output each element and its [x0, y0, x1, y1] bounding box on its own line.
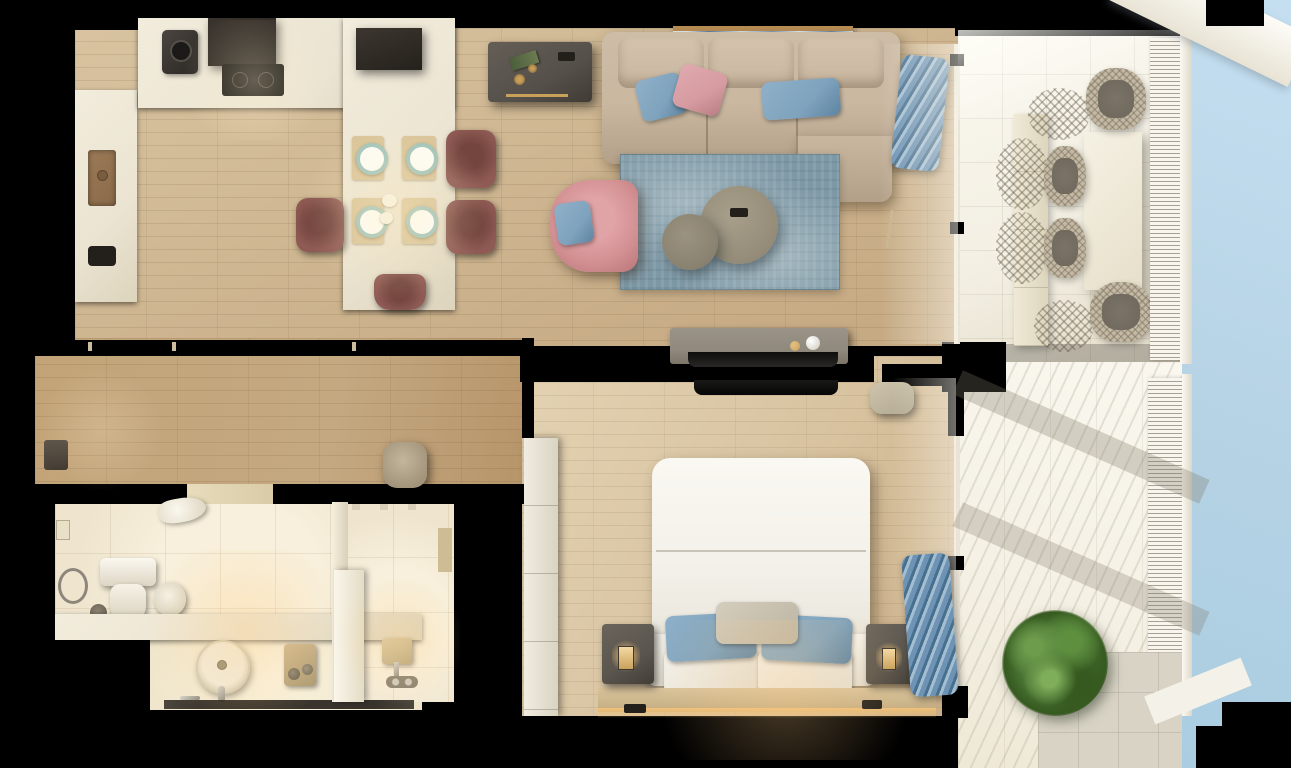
duvet-fold: [656, 550, 866, 552]
headboard-ledge: [598, 688, 936, 712]
floorplan-render: [0, 0, 1291, 768]
desk: [488, 42, 592, 102]
chair-shadow: [996, 138, 1048, 210]
curtain-bedroom: [901, 552, 959, 697]
outdoor-table: [1084, 132, 1142, 290]
tv-remotes: [730, 208, 748, 217]
wardrobe: [524, 438, 558, 716]
plant-shrub: [1002, 610, 1108, 716]
outdoor-chair-seat: [1052, 230, 1078, 266]
shower-head: [382, 638, 412, 664]
caddy-jar: [302, 664, 313, 675]
door-jamb-marks: [88, 342, 92, 351]
toilet-paper-roll: [154, 582, 186, 616]
decor-sphere-white: [806, 336, 820, 350]
window-mullion: [948, 556, 964, 570]
desk-cup: [528, 64, 537, 73]
shower-valve: [386, 676, 418, 688]
railing-outer-ledge: [1180, 34, 1192, 364]
chair-shadow: [1028, 88, 1090, 140]
remote-on-ledge: [624, 704, 646, 713]
wall-top-left: [0, 0, 140, 30]
caddy-jar: [288, 668, 300, 680]
basin-drain: [217, 660, 227, 670]
dining-chair: [446, 130, 496, 188]
burner: [258, 72, 274, 88]
dinner-plate: [406, 143, 438, 175]
door-jamb-marks: [172, 342, 176, 351]
range-hood: [208, 18, 276, 66]
desk-cup: [514, 74, 525, 85]
sky: [1180, 0, 1291, 768]
remote-on-ledge: [862, 700, 882, 709]
shower-glass-handle: [180, 696, 200, 700]
bed-pillow-lumbar: [716, 602, 798, 644]
railing-outer-ledge: [1182, 374, 1192, 716]
decor-sphere-gold: [790, 341, 800, 351]
wall-left: [0, 28, 75, 353]
wall-hook: [408, 504, 416, 510]
wall-cabinet: [356, 28, 422, 70]
wall-hallway-top: [35, 340, 532, 356]
tv-living: [688, 352, 838, 367]
chair-shadow: [996, 212, 1048, 284]
window-mullion: [950, 54, 964, 66]
door-jamb-marks: [352, 342, 356, 351]
entrance-door: [44, 440, 68, 470]
outdoor-chair-seat: [1102, 294, 1140, 330]
outdoor-chair-seat: [1098, 80, 1134, 118]
wall-corner-top-right: [1206, 0, 1264, 26]
desk-phone: [558, 52, 575, 61]
shower-half-wall: [334, 570, 364, 702]
burner: [232, 72, 248, 88]
towel-ring: [58, 568, 88, 604]
serving-bowl: [380, 212, 393, 224]
window-mullion: [950, 222, 964, 234]
desk-gold-trim: [506, 94, 568, 97]
chair-shadow: [1034, 300, 1094, 352]
wall-hook: [352, 504, 360, 510]
dinner-plate: [406, 206, 438, 238]
lamp-body: [882, 648, 896, 670]
toilet-tank: [100, 558, 156, 586]
railing-top: [1150, 38, 1182, 360]
light-switch: [56, 520, 70, 540]
hallway-pouf: [383, 442, 427, 488]
vanity-counter: [55, 614, 422, 640]
coffee-table-small: [662, 214, 718, 270]
wall-hallway-right: [522, 338, 534, 438]
dining-chair: [374, 274, 426, 310]
shower-glass: [164, 700, 414, 709]
armchair-pillow-blue: [553, 200, 594, 247]
lamp-body: [618, 646, 634, 670]
kitchen-small-appliance: [88, 246, 116, 266]
hallway-floor: [35, 338, 532, 490]
wall-corner-bottom-right-step: [1196, 726, 1226, 768]
shower-niche: [438, 528, 452, 572]
window-mullion: [948, 392, 964, 436]
wall-hook: [380, 504, 388, 510]
laundry-basket: [870, 382, 914, 414]
living-glass-wall: [954, 44, 960, 344]
outdoor-chair-seat: [1052, 158, 1078, 194]
wall-corner-bottom-right: [1222, 702, 1291, 768]
dining-chair: [446, 200, 496, 254]
serving-bowl: [382, 194, 397, 207]
dinner-plate: [356, 143, 388, 175]
sofa-pillow-blue: [761, 77, 841, 120]
wall-top-living: [455, 0, 957, 26]
dining-chair: [296, 198, 344, 252]
sink-drain: [97, 170, 108, 181]
coffee-cup: [170, 40, 192, 62]
tv-bedroom: [694, 380, 838, 395]
